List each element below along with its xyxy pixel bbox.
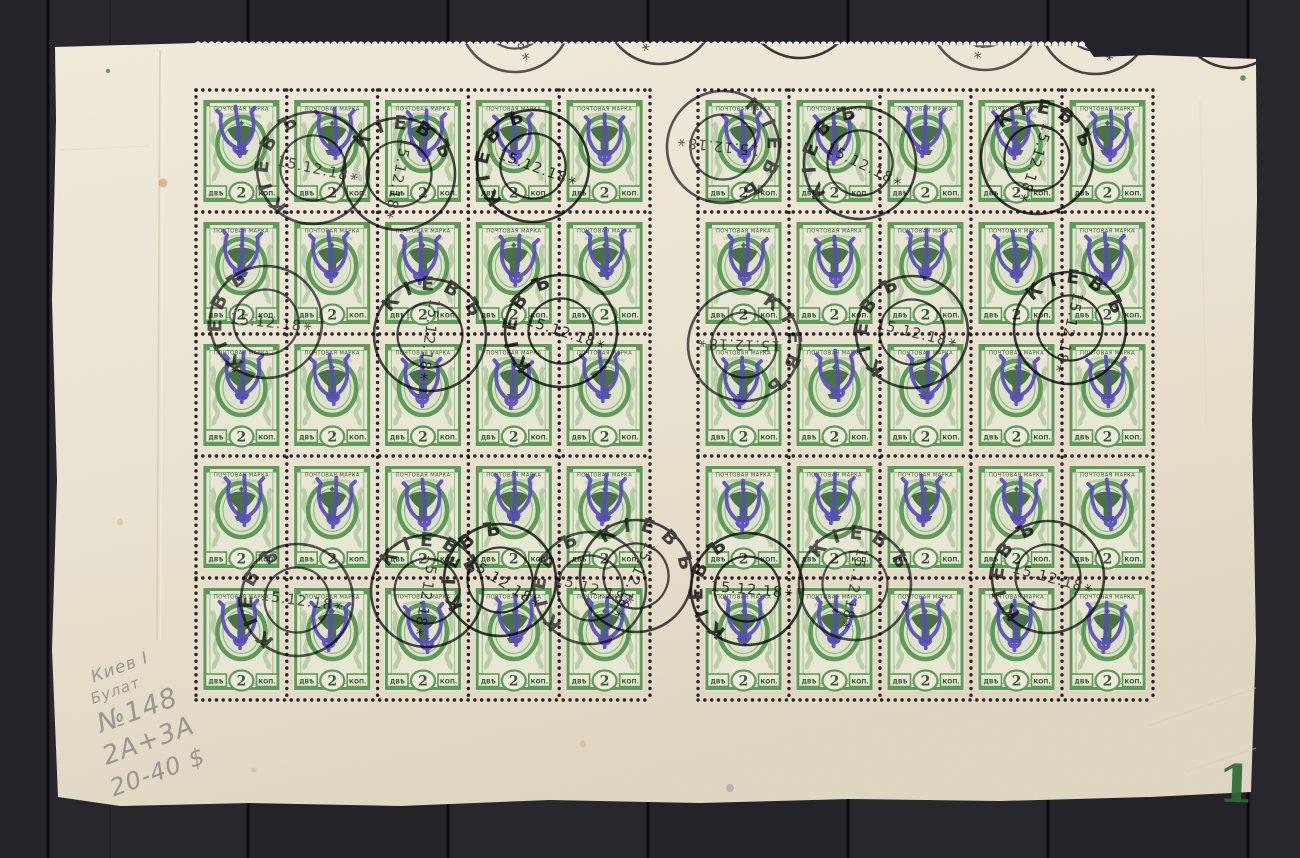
green-fleck: [1240, 75, 1246, 81]
frame-corner: [636, 346, 641, 351]
frame-corner: [636, 102, 641, 107]
frame-corner: [364, 346, 369, 351]
right-value-label: КОП.: [1124, 679, 1141, 686]
plate-number: 1: [1217, 753, 1255, 815]
stamp-top-inscription: ПОЧТОВАЯ МАРКА: [1080, 473, 1135, 479]
left-value-label: ДВѢ: [299, 435, 314, 442]
value-numeral: 2: [921, 674, 931, 690]
value-numeral: 2: [1103, 186, 1113, 202]
stamp-top-inscription: ПОЧТОВАЯ МАРКА: [989, 351, 1044, 357]
trident-stroke: [602, 515, 603, 524]
frame-corner: [957, 468, 962, 473]
value-numeral: 2: [830, 308, 840, 324]
right-value-label: КОП.: [440, 679, 457, 686]
left-value-label: ДВѢ: [802, 435, 817, 442]
right-value-label: КОП.: [621, 679, 638, 686]
value-numeral: 2: [921, 552, 931, 568]
postmark-star: *: [690, 339, 709, 348]
stamp-top-inscription: ПОЧТОВАЯ МАРКА: [305, 473, 360, 479]
frame-corner: [1071, 468, 1076, 473]
trident-stroke: [423, 484, 426, 519]
frame-corner: [707, 468, 712, 473]
frame-corner: [1139, 346, 1144, 351]
right-value-label: КОП.: [1124, 557, 1141, 564]
frame-corner: [1071, 224, 1076, 229]
value-numeral: 2: [327, 674, 337, 690]
frame-corner: [1139, 468, 1144, 473]
green-fleck: [106, 69, 110, 73]
value-numeral: 2: [509, 674, 519, 690]
frame-corner: [798, 224, 803, 229]
trident-stroke: [1016, 395, 1017, 404]
value-numeral: 2: [600, 430, 610, 446]
value-numeral: 2: [1103, 552, 1113, 568]
trident-stroke: [1110, 115, 1112, 150]
trident-stroke: [922, 147, 923, 156]
frame-corner: [980, 224, 985, 229]
right-value-label: КОП.: [349, 557, 366, 564]
right-value-label: КОП.: [1124, 191, 1141, 198]
trident-stroke: [333, 395, 334, 404]
frame-corner: [477, 102, 482, 107]
frame-corner: [957, 224, 962, 229]
frame-corner: [568, 224, 573, 229]
frame-corner: [296, 346, 301, 351]
left-value-label: ДВѢ: [299, 679, 314, 686]
value-numeral: 2: [237, 186, 247, 202]
value-numeral: 2: [739, 674, 749, 690]
frame-corner: [866, 468, 871, 473]
frame-corner: [296, 102, 301, 107]
frame-corner: [273, 102, 278, 107]
frame-corner: [205, 102, 210, 107]
trident-stroke: [744, 599, 746, 634]
right-value-label: КОП.: [942, 435, 959, 442]
trident-stroke: [244, 480, 245, 515]
left-value-label: ДВѢ: [572, 435, 587, 442]
left-value-label: ДВѢ: [984, 313, 999, 320]
stamp-top-inscription: ПОЧТОВАЯ МАРКА: [214, 107, 269, 113]
frame-corner: [1048, 468, 1053, 473]
frame-corner: [1139, 224, 1144, 229]
stamp-top-inscription: ПОЧТОВАЯ МАРКА: [898, 595, 953, 601]
trident-stroke: [1103, 643, 1104, 652]
trident-stroke: [1106, 361, 1109, 396]
left-value-label: ДВѢ: [893, 313, 908, 320]
frame-corner: [364, 590, 369, 595]
left-value-label: ДВѢ: [481, 679, 496, 686]
stamp-top-inscription: ПОЧТОВАЯ МАРКА: [989, 473, 1044, 479]
foxing-spot: [580, 741, 587, 748]
value-numeral: 2: [600, 308, 610, 324]
trident-stroke: [605, 602, 608, 637]
trident-stroke: [928, 357, 929, 392]
value-numeral: 2: [418, 674, 428, 690]
stamp: ПОЧТОВАЯ МАРКАДВѢКОП.2: [293, 221, 371, 325]
trident-stroke: [838, 391, 839, 400]
frame-corner: [296, 224, 301, 229]
trident-stroke: [1110, 520, 1111, 529]
left-value-label: ДВѢ: [711, 435, 726, 442]
right-value-label: КОП.: [349, 679, 366, 686]
frame-corner: [1139, 102, 1144, 107]
left-value-label: ДВѢ: [711, 191, 726, 198]
left-value-label: ДВѢ: [208, 557, 223, 564]
value-numeral: 2: [830, 674, 840, 690]
trident-stroke: [835, 241, 837, 276]
left-value-label: ДВѢ: [893, 435, 908, 442]
trident-stroke: [1105, 238, 1107, 273]
stamp-top-inscription: ПОЧТОВАЯ МАРКА: [305, 229, 360, 235]
frame-corner: [545, 468, 550, 473]
trident-stroke: [605, 119, 606, 154]
frame-corner: [1048, 346, 1053, 351]
frame-corner: [889, 224, 894, 229]
right-value-label: КОП.: [1033, 557, 1050, 564]
trident-stroke: [515, 276, 516, 285]
frame-corner: [364, 468, 369, 473]
foxing-spot: [117, 519, 123, 525]
frame-corner: [957, 590, 962, 595]
foxing-spot: [252, 768, 257, 773]
trident-stroke: [740, 362, 743, 397]
stamp-top-inscription: ПОЧТОВАЯ МАРКА: [1080, 595, 1135, 601]
right-value-label: КОП.: [621, 191, 638, 198]
frame-corner: [889, 346, 894, 351]
left-value-label: ДВѢ: [711, 679, 726, 686]
value-numeral: 2: [327, 430, 337, 446]
right-value-label: КОП.: [349, 435, 366, 442]
frame-corner: [455, 102, 460, 107]
stamp: ПОЧТОВАЯ МАРКАДВѢКОП.2: [566, 221, 644, 325]
right-value-label: КОП.: [1033, 679, 1050, 686]
left-value-label: ДВѢ: [572, 313, 587, 320]
left-value-label: ДВѢ: [802, 679, 817, 686]
right-value-label: КОП.: [942, 557, 959, 564]
frame-corner: [568, 102, 573, 107]
stamp: ПОЧТОВАЯ МАРКАДВѢКОП.2: [887, 587, 965, 691]
frame-corner: [636, 224, 641, 229]
left-value-label: ДВѢ: [299, 557, 314, 564]
trident-stroke: [602, 392, 603, 401]
right-value-label: КОП.: [258, 435, 275, 442]
stamp-top-inscription: ПОЧТОВАЯ МАРКА: [214, 473, 269, 479]
trident-stroke: [420, 238, 422, 273]
stamp: ПОЧТОВАЯ МАРКАДВѢКОП.2: [1069, 465, 1147, 569]
frame-corner: [798, 468, 803, 473]
frame-corner: [1048, 224, 1053, 229]
trident-stroke: [925, 234, 927, 269]
frame-corner: [568, 468, 573, 473]
right-value-label: КОП.: [942, 679, 959, 686]
stamp: ПОЧТОВАЯ МАРКАДВѢКОП.2: [978, 465, 1056, 569]
left-value-label: ДВѢ: [208, 191, 223, 198]
trident-stroke: [834, 601, 837, 636]
value-numeral: 2: [509, 430, 519, 446]
frame-corner: [545, 346, 550, 351]
trident-stroke: [514, 477, 516, 512]
value-numeral: 2: [921, 186, 931, 202]
frame-corner: [980, 346, 985, 351]
left-value-label: ДВѢ: [984, 435, 999, 442]
stamp-top-inscription: ПОЧТОВАЯ МАРКА: [1080, 107, 1135, 113]
foxing-spot: [726, 784, 734, 792]
left-value-label: ДВѢ: [299, 191, 314, 198]
left-value-label: ДВѢ: [208, 679, 223, 686]
left-value-label: ДВѢ: [390, 679, 405, 686]
right-value-label: КОП.: [1124, 435, 1141, 442]
frame-corner: [364, 102, 369, 107]
value-numeral: 2: [418, 430, 428, 446]
value-numeral: 2: [921, 430, 931, 446]
frame-corner: [387, 346, 392, 351]
right-value-label: КОП.: [621, 435, 638, 442]
stamp-top-inscription: ПОЧТОВАЯ МАРКА: [395, 473, 450, 479]
frame-corner: [477, 224, 482, 229]
left-value-label: ДВѢ: [893, 679, 908, 686]
trident-stroke: [239, 147, 240, 156]
frame-corner: [889, 468, 894, 473]
left-value-label: ДВѢ: [208, 435, 223, 442]
frame-corner: [477, 346, 482, 351]
left-value-label: ДВѢ: [1075, 679, 1090, 686]
right-value-label: КОП.: [531, 679, 548, 686]
frame-corner: [545, 102, 550, 107]
frame-corner: [775, 102, 780, 107]
trident-stroke: [922, 480, 924, 515]
right-value-label: КОП.: [760, 679, 777, 686]
right-value-label: КОП.: [942, 191, 959, 198]
trident-stroke: [329, 236, 332, 271]
stamp-top-inscription: ПОЧТОВАЯ МАРКА: [807, 229, 862, 235]
value-numeral: 2: [739, 430, 749, 446]
frame-corner: [775, 224, 780, 229]
stamp: ПОЧТОВАЯ МАРКАДВѢКОП.2: [887, 343, 965, 447]
value-numeral: 2: [600, 186, 610, 202]
frame-corner: [866, 224, 871, 229]
right-value-label: КОП.: [258, 679, 275, 686]
frame-corner: [798, 102, 803, 107]
frame-corner: [707, 102, 712, 107]
frame-corner: [1048, 590, 1053, 595]
postmark-date: 15.12.18: [707, 335, 780, 354]
frame-corner: [775, 468, 780, 473]
trident-stroke: [831, 514, 832, 523]
stamp-top-inscription: ПОЧТОВАЯ МАРКА: [486, 229, 541, 235]
stamp-top-inscription: ПОЧТОВАЯ МАРКА: [577, 107, 632, 113]
trident-stroke: [742, 485, 744, 520]
right-value-label: КОП.: [531, 435, 548, 442]
value-numeral: 2: [600, 674, 610, 690]
stamp-top-inscription: ПОЧТОВАЯ МАРКА: [716, 473, 771, 479]
stamp: ПОЧТОВАЯ МАРКАДВѢКОП.2: [293, 465, 371, 569]
frame-corner: [866, 590, 871, 595]
stamp-top-inscription: ПОЧТОВАЯ МАРКА: [395, 107, 450, 113]
trident-stroke: [744, 275, 745, 284]
frame-corner: [273, 468, 278, 473]
right-value-label: КОП.: [851, 679, 868, 686]
frame-corner: [387, 468, 392, 473]
value-numeral: 2: [739, 308, 749, 324]
frame-corner: [205, 346, 210, 351]
value-numeral: 2: [1103, 430, 1113, 446]
trident-stroke: [606, 233, 608, 268]
frame-corner: [636, 468, 641, 473]
frame-corner: [889, 102, 894, 107]
frame-corner: [477, 468, 482, 473]
value-numeral: 2: [1103, 674, 1113, 690]
right-value-label: КОП.: [349, 313, 366, 320]
frame-corner: [387, 102, 392, 107]
trident-stroke: [333, 518, 334, 527]
right-value-label: КОП.: [440, 191, 457, 198]
frame-corner: [1139, 590, 1144, 595]
stamp-top-inscription: ПОЧТОВАЯ МАРКА: [989, 229, 1044, 235]
value-numeral: 2: [830, 430, 840, 446]
value-numeral: 2: [327, 308, 337, 324]
frame-corner: [455, 224, 460, 229]
right-value-label: КОП.: [760, 435, 777, 442]
trident-stroke: [1016, 272, 1017, 281]
frame-corner: [1071, 102, 1076, 107]
frame-corner: [205, 468, 210, 473]
stamp: ПОЧТОВАЯ МАРКАДВѢКОП.2: [887, 99, 965, 203]
frame-corner: [455, 468, 460, 473]
left-value-label: ДВѢ: [1075, 435, 1090, 442]
value-numeral: 2: [739, 552, 749, 568]
photo-scene: ПОЧТОВАЯ МАРКАДВѢКОП.2ПОЧТОВАЯ МАРКАДВѢК…: [0, 0, 1300, 858]
left-value-label: ДВѢ: [481, 435, 496, 442]
trident-stroke: [925, 639, 926, 648]
frame-corner: [273, 346, 278, 351]
left-value-label: ДВѢ: [711, 313, 726, 320]
right-value-label: КОП.: [851, 435, 868, 442]
frame-corner: [980, 468, 985, 473]
frame-corner: [364, 224, 369, 229]
frame-corner: [866, 102, 871, 107]
trident-stroke: [515, 600, 517, 635]
frame-corner: [477, 590, 482, 595]
frame-corner: [707, 224, 712, 229]
stamp-sheet-photo: ПОЧТОВАЯ МАРКАДВѢКОП.2ПОЧТОВАЯ МАРКАДВѢК…: [0, 0, 1300, 858]
left-value-label: ДВѢ: [984, 679, 999, 686]
value-numeral: 2: [1012, 674, 1022, 690]
left-value-label: ДВѢ: [572, 679, 587, 686]
value-numeral: 2: [921, 308, 931, 324]
frame-corner: [205, 590, 210, 595]
value-numeral: 2: [509, 552, 519, 568]
right-value-label: КОП.: [1033, 435, 1050, 442]
frame-corner: [980, 102, 985, 107]
frame-corner: [568, 346, 573, 351]
right-value-label: КОП.: [621, 313, 638, 320]
right-value-label: КОП.: [440, 435, 457, 442]
frame-corner: [205, 224, 210, 229]
left-value-label: ДВѢ: [802, 313, 817, 320]
frame-corner: [545, 224, 550, 229]
foxing-spot: [159, 179, 168, 188]
right-value-label: КОП.: [942, 313, 959, 320]
trident-stroke: [1019, 482, 1021, 517]
value-numeral: 2: [1012, 430, 1022, 446]
frame-corner: [889, 590, 894, 595]
left-value-label: ДВѢ: [390, 435, 405, 442]
frame-corner: [387, 590, 392, 595]
stamp-top-inscription: ПОЧТОВАЯ МАРКА: [716, 229, 771, 235]
frame-corner: [296, 468, 301, 473]
stamp: ПОЧТОВАЯ МАРКАДВѢКОП.2: [978, 343, 1056, 447]
value-numeral: 2: [237, 552, 247, 568]
frame-corner: [957, 102, 962, 107]
frame-corner: [980, 590, 985, 595]
frame-corner: [273, 224, 278, 229]
stamp-top-inscription: ПОЧТОВАЯ МАРКА: [1080, 229, 1135, 235]
value-numeral: 2: [237, 674, 247, 690]
stamp: ПОЧТОВАЯ МАРКАДВѢКОП.2: [293, 343, 371, 447]
value-numeral: 2: [237, 430, 247, 446]
stamp: ПОЧТОВАЯ МАРКАДВѢКОП.2: [1069, 587, 1147, 691]
stamp-top-inscription: ПОЧТОВАЯ МАРКА: [898, 473, 953, 479]
